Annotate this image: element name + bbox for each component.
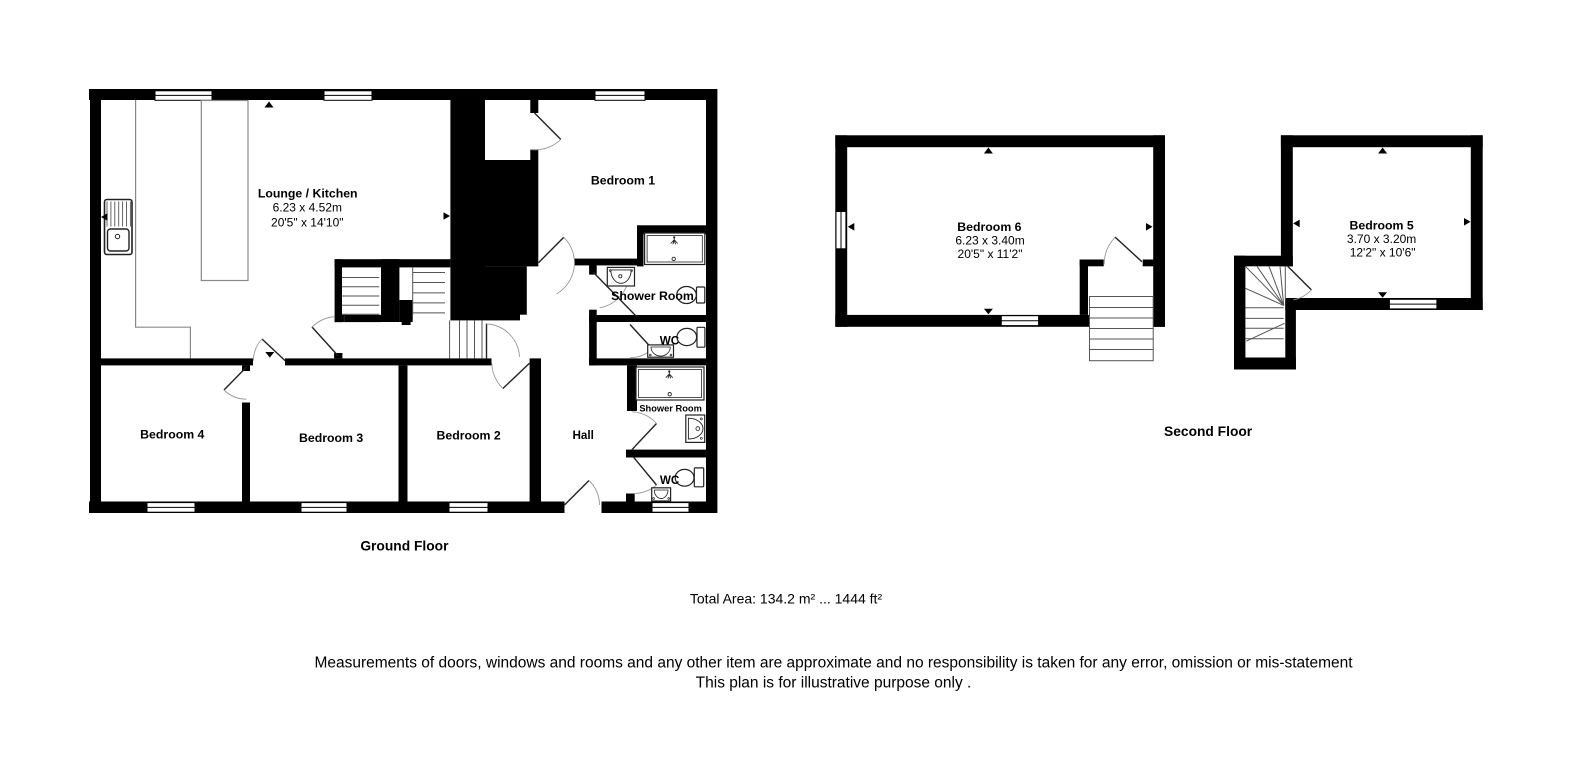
svg-text:Bedroom 2: Bedroom 2 (436, 429, 500, 443)
svg-text:Hall: Hall (572, 429, 593, 442)
svg-text:3.70 x 3.20m: 3.70 x 3.20m (1347, 232, 1416, 246)
svg-text:Bedroom 6: Bedroom 6 (957, 220, 1021, 234)
svg-text:Ground Floor: Ground Floor (360, 539, 449, 554)
svg-text:Second Floor: Second Floor (1164, 424, 1253, 439)
svg-text:Bedroom 3: Bedroom 3 (299, 431, 363, 445)
svg-text:Shower Room: Shower Room (611, 289, 694, 303)
svg-text:12'2" x 10'6": 12'2" x 10'6" (1350, 246, 1416, 260)
svg-text:Total Area: 134.2 m² ... 1444: Total Area: 134.2 m² ... 1444 ft² (690, 591, 883, 607)
svg-text:WC: WC (660, 474, 680, 487)
svg-text:Measurements of doors, windows: Measurements of doors, windows and rooms… (314, 655, 1353, 672)
svg-text:WC: WC (660, 335, 680, 348)
svg-text:This plan is for illustrative: This plan is for illustrative purpose on… (696, 675, 972, 692)
svg-text:Lounge / Kitchen: Lounge / Kitchen (258, 186, 358, 200)
svg-text:Bedroom 1: Bedroom 1 (591, 173, 655, 187)
svg-text:20'5" x 14'10": 20'5" x 14'10" (271, 215, 344, 229)
svg-text:20'5" x 11'2": 20'5" x 11'2" (958, 247, 1023, 261)
svg-text:Shower Room: Shower Room (639, 403, 702, 413)
svg-text:6.23 x 4.52m: 6.23 x 4.52m (273, 201, 342, 215)
svg-text:Bedroom 4: Bedroom 4 (140, 428, 204, 442)
svg-text:Bedroom 5: Bedroom 5 (1349, 218, 1413, 232)
svg-text:6.23 x 3.40m: 6.23 x 3.40m (955, 234, 1024, 248)
